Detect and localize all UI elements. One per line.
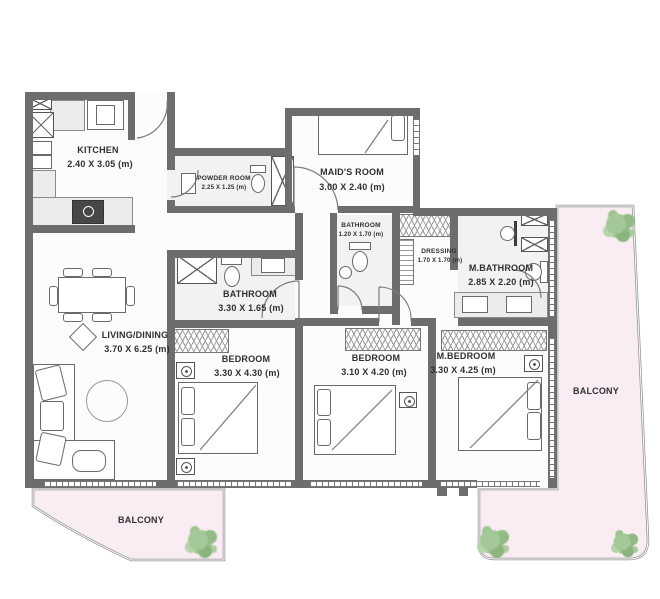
chair <box>92 268 112 277</box>
balcony-right-label: BALCONY <box>573 386 619 396</box>
powder-room-label: POWDER ROOM <box>197 175 250 182</box>
pillow <box>181 418 195 446</box>
washbasin <box>339 266 352 279</box>
pillow <box>391 115 405 141</box>
pillow <box>317 389 331 416</box>
wall <box>295 213 303 280</box>
wall <box>428 318 436 488</box>
plant-icon <box>188 530 208 550</box>
dining-table <box>58 277 126 313</box>
window-band <box>440 481 540 487</box>
toilet-bowl <box>352 251 368 272</box>
chair <box>126 286 135 306</box>
bathroom-small-dims: 1.20 X 1.70 (m) <box>339 232 384 238</box>
master-bedroom-label: M.BEDROOM <box>437 351 496 361</box>
wardrobe-hatch <box>171 329 229 353</box>
window-band <box>413 119 420 156</box>
washbasin <box>500 226 515 241</box>
toilet-bowl <box>251 174 265 193</box>
wall <box>330 213 337 306</box>
maids-room-label: MAID'S ROOM <box>320 167 384 177</box>
wardrobe-hatch <box>345 328 421 351</box>
kitchen-cabinet <box>50 100 85 131</box>
shaft-x-icon <box>521 237 548 252</box>
window-band <box>310 481 422 487</box>
window-band <box>549 220 555 316</box>
nightstand-lamp-icon <box>176 362 195 379</box>
kitchen-dims: 2.40 X 3.05 (m) <box>67 159 133 169</box>
pillow <box>317 419 331 446</box>
dressing-label: DRESSING <box>421 248 457 255</box>
toilet-tank <box>250 165 266 173</box>
wall <box>167 250 175 488</box>
fridge <box>30 141 52 155</box>
wall <box>175 206 285 213</box>
pillow <box>181 387 195 415</box>
powder-sink <box>181 173 196 194</box>
floor-hall <box>175 213 303 233</box>
wall <box>167 200 175 213</box>
wall <box>338 206 420 213</box>
bathroom-dims: 3.30 X 1.65 (m) <box>218 303 284 313</box>
wall <box>285 108 292 213</box>
bedroom1-dims: 3.30 X 4.30 (m) <box>214 368 280 378</box>
wall <box>458 318 557 326</box>
pillow <box>527 412 541 440</box>
bedroom2-label: BEDROOM <box>352 353 400 363</box>
wall <box>413 108 420 119</box>
bedroom2-dims: 3.10 X 4.20 (m) <box>341 367 407 377</box>
window-band <box>177 481 291 487</box>
chair <box>49 286 58 306</box>
master-bedroom-dims: 3.30 X 4.25 (m) <box>430 365 496 375</box>
wall <box>167 320 303 328</box>
floor-plan: KITCHEN 2.40 X 3.05 (m) POWDER ROOM 2.25… <box>0 0 660 599</box>
maids-room-dims: 3.00 X 2.40 (m) <box>319 182 385 192</box>
wall <box>175 148 292 156</box>
nightstand-lamp-icon <box>524 355 543 372</box>
bedroom1-label: BEDROOM <box>222 354 270 364</box>
powder-room-dims: 2.25 X 1.25 (m) <box>202 185 247 191</box>
toilet-tank <box>221 257 242 265</box>
wall <box>167 250 303 258</box>
wardrobe-hatch <box>397 214 452 237</box>
wall <box>413 156 420 216</box>
balcony-bottom-label: BALCONY <box>118 515 164 525</box>
wall <box>303 318 379 326</box>
wall <box>25 92 135 100</box>
bathroom-label: BATHROOM <box>223 289 277 299</box>
master-bathroom-dims: 2.85 X 2.20 (m) <box>468 277 534 287</box>
wall-stub <box>459 488 468 496</box>
vanity-sink <box>261 258 285 273</box>
wall <box>413 208 557 216</box>
appliance-door <box>96 105 115 125</box>
window-band <box>44 481 156 487</box>
plant-icon <box>614 534 631 551</box>
wall <box>295 318 303 488</box>
wall <box>285 206 295 213</box>
chair <box>92 313 112 322</box>
chair <box>63 313 83 322</box>
wall <box>25 225 135 233</box>
wall <box>25 92 33 488</box>
plant-icon <box>606 214 626 234</box>
wall <box>285 108 420 116</box>
wall <box>392 213 400 325</box>
roll-pillow <box>72 450 106 472</box>
door-leaf <box>128 99 135 140</box>
wall <box>167 92 175 170</box>
living-dining-dims: 3.70 X 6.25 (m) <box>104 344 170 354</box>
plant-icon <box>480 530 500 550</box>
nightstand-lamp-icon <box>176 458 195 475</box>
round-rug <box>86 380 128 422</box>
vanity-sink <box>506 296 532 313</box>
dressing-dims: 1.70 X 1.70 (m) <box>418 258 463 264</box>
wall <box>330 306 338 314</box>
nightstand-lamp-icon <box>399 392 417 408</box>
floor-corridor <box>303 213 330 325</box>
wall-stub <box>437 488 447 496</box>
toilet-tank <box>349 242 371 250</box>
kitchen-label: KITCHEN <box>77 145 118 155</box>
bathroom-small-label: BATHROOM <box>341 222 380 229</box>
fridge <box>30 155 52 169</box>
kitchen-counter <box>32 170 56 199</box>
window-band <box>549 338 555 478</box>
chair <box>63 268 83 277</box>
shower-tray <box>177 255 217 284</box>
sink-drain-icon <box>83 206 94 217</box>
pillow <box>527 382 541 410</box>
toilet-bowl <box>224 266 240 287</box>
wardrobe-hatch <box>441 330 547 351</box>
living-dining-label: LIVING/DINING <box>102 330 169 340</box>
master-bathroom-label: M.BATHROOM <box>469 263 533 273</box>
pillow <box>40 401 64 431</box>
vanity-sink <box>462 296 488 313</box>
